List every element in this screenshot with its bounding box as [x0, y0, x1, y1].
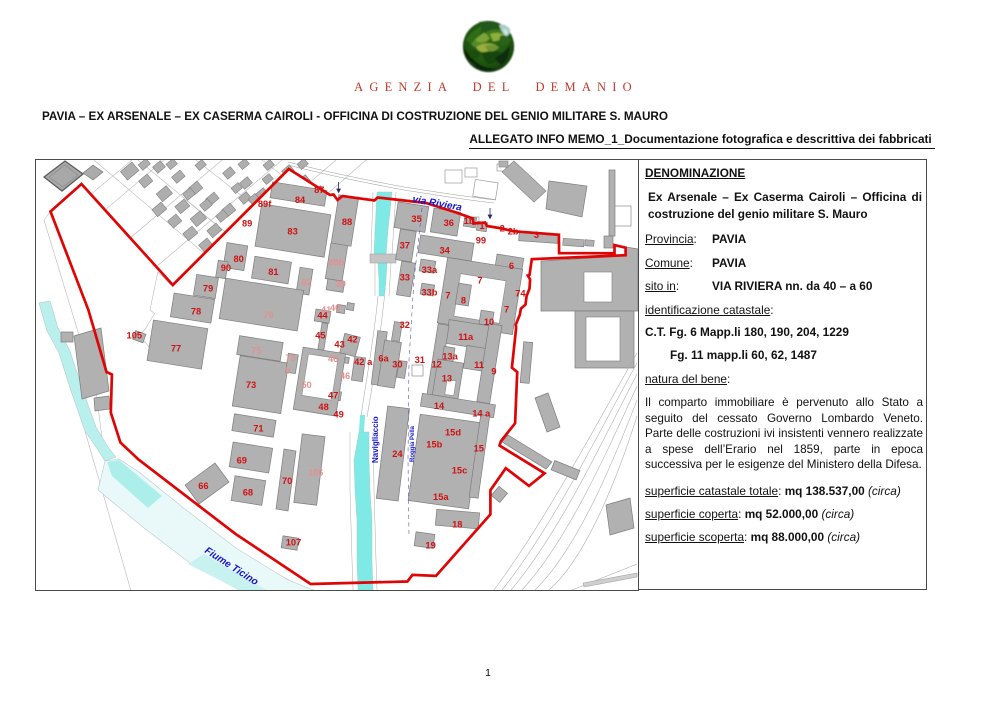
svg-text:75: 75: [251, 346, 261, 356]
svg-text:82: 82: [301, 277, 311, 287]
svg-text:13a: 13a: [442, 352, 458, 362]
svg-text:76: 76: [263, 310, 273, 320]
svg-text:14: 14: [434, 401, 445, 411]
svg-text:87: 87: [314, 185, 324, 195]
svg-text:33: 33: [400, 273, 410, 283]
svg-text:42 a: 42 a: [354, 357, 373, 367]
svg-text:11: 11: [474, 360, 484, 370]
svg-text:15d: 15d: [445, 428, 461, 438]
svg-text:84: 84: [295, 195, 306, 205]
svg-text:48: 48: [318, 402, 328, 412]
svg-text:106: 106: [308, 468, 324, 478]
svg-text:1: 1: [479, 221, 484, 231]
svg-text:66: 66: [198, 481, 208, 491]
svg-text:33b: 33b: [421, 288, 437, 298]
svg-text:69: 69: [237, 456, 247, 466]
svg-text:34: 34: [440, 246, 451, 256]
svg-text:9: 9: [491, 366, 496, 376]
svg-text:6a: 6a: [378, 354, 389, 364]
svg-text:2b: 2b: [508, 227, 519, 237]
svg-text:2: 2: [500, 223, 505, 233]
svg-text:88: 88: [342, 217, 352, 227]
svg-text:70: 70: [282, 476, 292, 486]
svg-text:74: 74: [515, 289, 526, 299]
svg-text:43: 43: [334, 340, 344, 350]
svg-text:88b: 88b: [328, 258, 344, 268]
svg-text:42: 42: [347, 334, 357, 344]
svg-text:3: 3: [534, 230, 539, 240]
svg-text:49: 49: [333, 410, 343, 420]
svg-text:90: 90: [221, 263, 231, 273]
svg-text:15b: 15b: [426, 440, 442, 450]
svg-text:1b: 1b: [464, 216, 475, 226]
svg-text:79: 79: [203, 284, 213, 294]
svg-text:14 a: 14 a: [472, 409, 491, 419]
svg-text:10: 10: [484, 317, 494, 327]
svg-text:73: 73: [246, 380, 256, 390]
svg-text:107: 107: [286, 538, 302, 548]
svg-text:35: 35: [411, 214, 421, 224]
svg-text:13: 13: [442, 373, 452, 383]
svg-text:7: 7: [477, 276, 482, 286]
svg-text:46: 46: [328, 354, 338, 364]
svg-text:Navigliaccio: Navigliaccio: [371, 416, 380, 463]
svg-text:77: 77: [171, 344, 181, 354]
svg-text:89: 89: [242, 218, 252, 228]
svg-text:Roggia Pella: Roggia Pella: [410, 425, 416, 462]
svg-text:89f: 89f: [258, 199, 272, 209]
svg-text:99: 99: [476, 236, 486, 246]
svg-text:18: 18: [452, 519, 462, 529]
svg-text:80: 80: [234, 254, 244, 264]
svg-text:36: 36: [444, 218, 454, 228]
svg-text:45: 45: [315, 331, 325, 341]
svg-text:15c: 15c: [452, 465, 468, 475]
svg-text:8: 8: [461, 295, 466, 305]
svg-text:33a: 33a: [422, 265, 438, 275]
svg-text:39: 39: [336, 279, 346, 289]
svg-text:105: 105: [127, 331, 143, 341]
svg-text:83: 83: [287, 227, 297, 237]
svg-text:24: 24: [392, 449, 403, 459]
svg-text:47: 47: [328, 391, 338, 401]
svg-text:15: 15: [474, 443, 484, 453]
svg-text:19: 19: [425, 541, 435, 551]
svg-text:7: 7: [504, 304, 509, 314]
svg-text:68: 68: [243, 487, 253, 497]
svg-text:71: 71: [253, 424, 263, 434]
svg-text:37: 37: [400, 241, 410, 251]
svg-text:6: 6: [509, 261, 514, 271]
svg-text:32: 32: [400, 320, 410, 330]
svg-text:11a: 11a: [458, 332, 474, 342]
svg-text:b: b: [285, 366, 291, 376]
svg-text:40: 40: [330, 303, 340, 313]
svg-text:50: 50: [301, 380, 311, 390]
svg-text:81: 81: [268, 267, 278, 277]
svg-text:78: 78: [191, 307, 201, 317]
svg-text:31: 31: [415, 355, 425, 365]
svg-text:15a: 15a: [433, 492, 449, 502]
svg-text:12: 12: [432, 359, 442, 369]
svg-text:30: 30: [392, 360, 402, 370]
svg-text:73: 73: [285, 353, 295, 363]
svg-text:46: 46: [340, 371, 350, 381]
svg-text:7: 7: [445, 291, 450, 301]
